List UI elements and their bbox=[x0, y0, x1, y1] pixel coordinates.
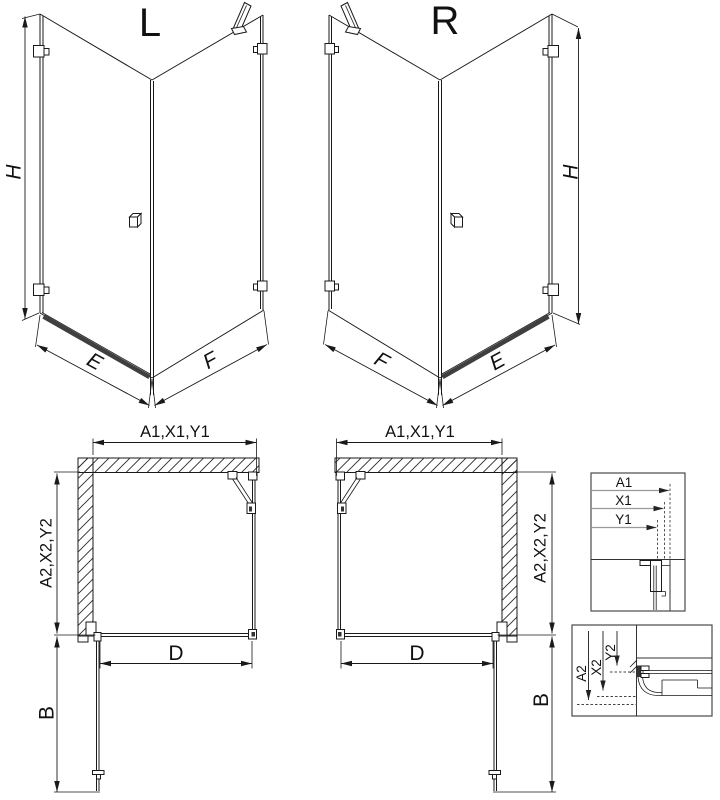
plan-right-top-dim-label: A1,X1,Y1 bbox=[385, 423, 455, 441]
technical-drawing-page: L bbox=[0, 0, 720, 800]
plan-left-door-dim-label: D bbox=[168, 642, 183, 665]
plan-left-top-dim-label: A1,X1,Y1 bbox=[140, 423, 210, 441]
canvas-background bbox=[0, 0, 720, 800]
plan-right-door-dim-label: D bbox=[409, 642, 424, 665]
plan-right-side-dim-label: A2,X2,Y2 bbox=[531, 513, 549, 583]
plan-right-swing-dim-label: B bbox=[530, 693, 553, 707]
door-handle bbox=[130, 214, 142, 228]
detail-floor-a2-label: A2 bbox=[574, 665, 589, 682]
detail-wall-a1-label: A1 bbox=[616, 475, 633, 490]
shower-enclosure-drawing: L bbox=[0, 0, 720, 800]
plan-left-swing-dim-label: B bbox=[35, 706, 58, 720]
detail-floor-x2-label: X2 bbox=[589, 659, 604, 676]
dim-label-height-right: H bbox=[559, 164, 582, 180]
dim-label-height-left: H bbox=[2, 164, 25, 180]
variant-label-left: L bbox=[139, 1, 161, 45]
door-handle bbox=[451, 214, 463, 228]
detail-wall-y1-label: Y1 bbox=[615, 512, 632, 527]
variant-label-right: R bbox=[431, 0, 460, 43]
plan-left-side-dim-label: A2,X2,Y2 bbox=[37, 518, 55, 588]
detail-wall-x1-label: X1 bbox=[615, 493, 632, 508]
detail-floor-y2-label: Y2 bbox=[603, 644, 618, 661]
